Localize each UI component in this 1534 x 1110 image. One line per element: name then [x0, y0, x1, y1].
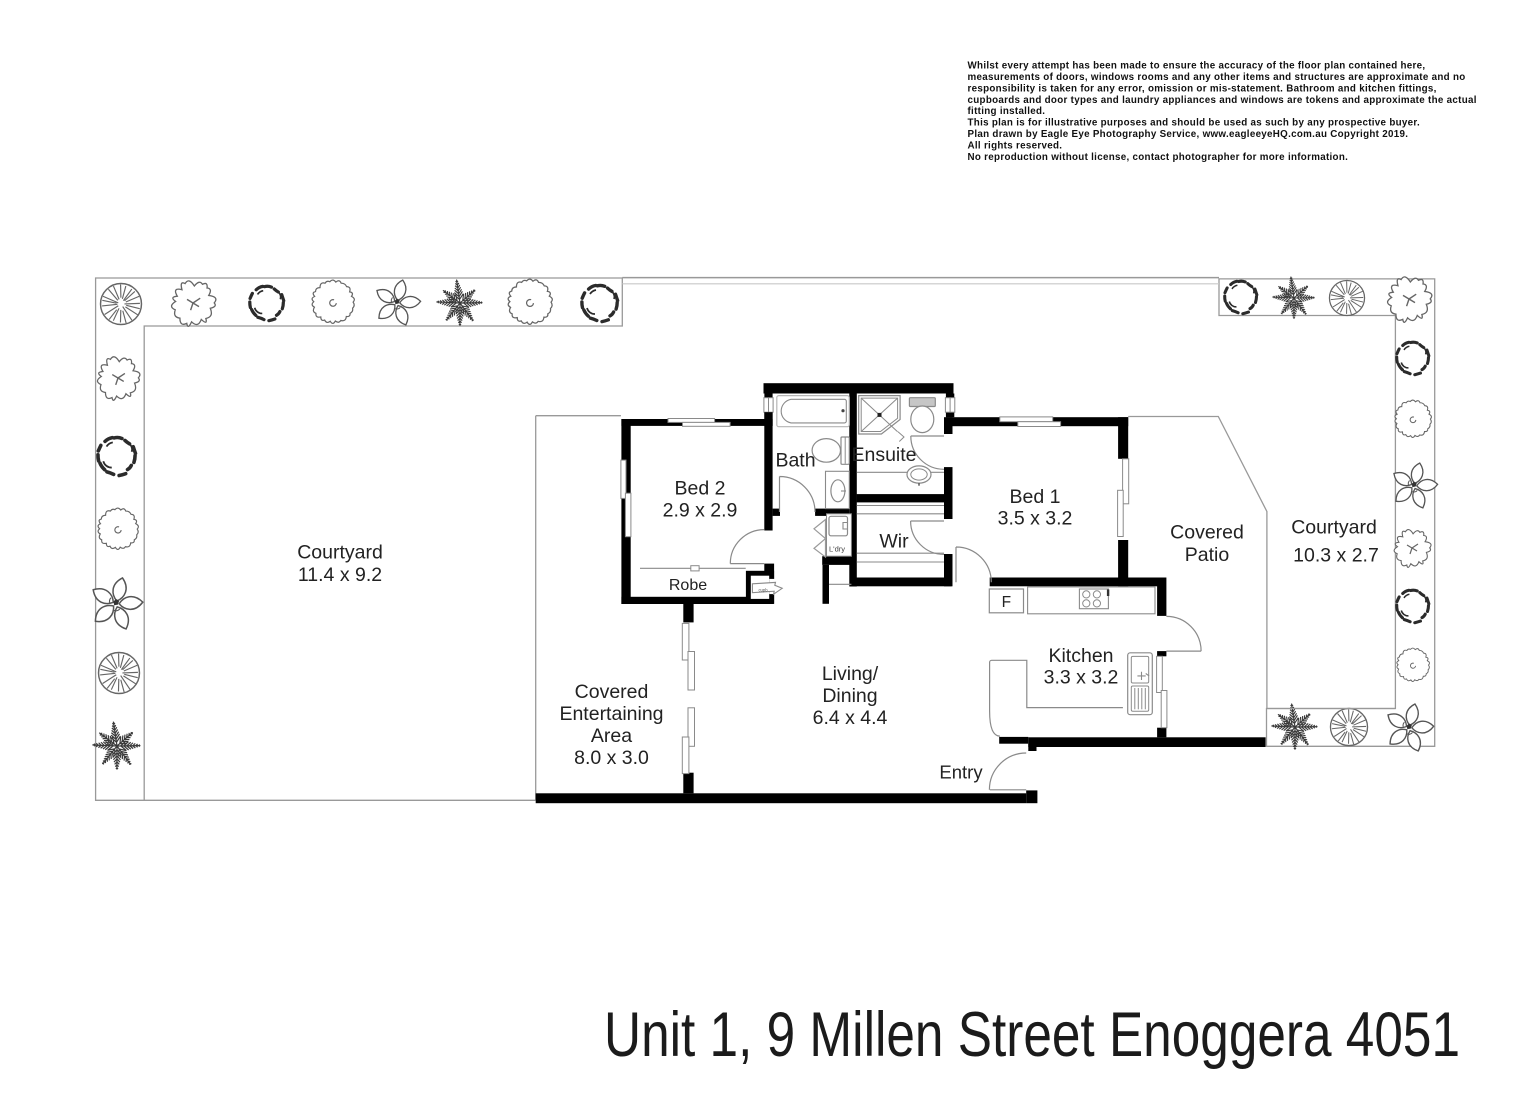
svg-text:Area: Area	[591, 725, 632, 747]
svg-text:Dining: Dining	[822, 685, 877, 707]
svg-text:Unit 1, 9 Millen Street Enogge: Unit 1, 9 Millen Street Enoggera 4051	[604, 1000, 1460, 1070]
svg-text:Bath: Bath	[775, 450, 815, 472]
svg-text:11.4 x 9.2: 11.4 x 9.2	[298, 564, 382, 586]
svg-text:This plan is for illustrative: This plan is for illustrative purposes a…	[968, 118, 1421, 129]
svg-text:Ensuite: Ensuite	[851, 444, 916, 466]
svg-text:Wir: Wir	[879, 531, 909, 553]
svg-text:responsibility is taken for an: responsibility is taken for any error, o…	[968, 83, 1437, 94]
svg-text:8.0 x 3.0: 8.0 x 3.0	[574, 747, 649, 769]
svg-text:All rights reserved.: All rights reserved.	[968, 140, 1063, 151]
svg-text:Courtyard: Courtyard	[1291, 517, 1377, 539]
svg-text:Plan drawn by Eagle Eye Photog: Plan drawn by Eagle Eye Photography Serv…	[968, 129, 1409, 140]
svg-text:Entry: Entry	[939, 762, 983, 783]
svg-text:Bed 1: Bed 1	[1010, 486, 1061, 508]
svg-text:10.3 x 2.7: 10.3 x 2.7	[1293, 545, 1379, 567]
svg-text:Bed 2: Bed 2	[675, 478, 726, 500]
svg-text:2.9 x 2.9: 2.9 x 2.9	[663, 500, 738, 522]
svg-text:3.5 x 3.2: 3.5 x 3.2	[998, 508, 1073, 530]
svg-text:cupb: cupb	[758, 587, 768, 592]
svg-text:No reproduction without licens: No reproduction without license, contact…	[968, 152, 1349, 163]
svg-text:3.3 x 3.2: 3.3 x 3.2	[1044, 667, 1119, 689]
svg-text:Entertaining: Entertaining	[559, 703, 663, 725]
svg-text:fitting installed.: fitting installed.	[968, 106, 1046, 117]
svg-text:Courtyard: Courtyard	[297, 542, 383, 564]
svg-text:Living/: Living/	[822, 663, 879, 685]
svg-text:6.4 x 4.4: 6.4 x 4.4	[813, 707, 888, 729]
svg-text:Robe: Robe	[669, 577, 707, 594]
svg-text:Kitchen: Kitchen	[1048, 645, 1113, 667]
svg-text:Whilst every attempt has been: Whilst every attempt has been made to en…	[968, 61, 1426, 72]
svg-text:L'dry: L'dry	[829, 545, 845, 554]
svg-text:measurements of doors, windows: measurements of doors, windows rooms and…	[968, 72, 1466, 83]
svg-text:F: F	[1002, 594, 1011, 611]
svg-text:Covered: Covered	[1170, 522, 1244, 544]
svg-text:Covered: Covered	[575, 681, 649, 703]
svg-text:Patio: Patio	[1185, 544, 1230, 566]
svg-text:cupboards and door types and l: cupboards and door types and laundry app…	[968, 95, 1477, 106]
